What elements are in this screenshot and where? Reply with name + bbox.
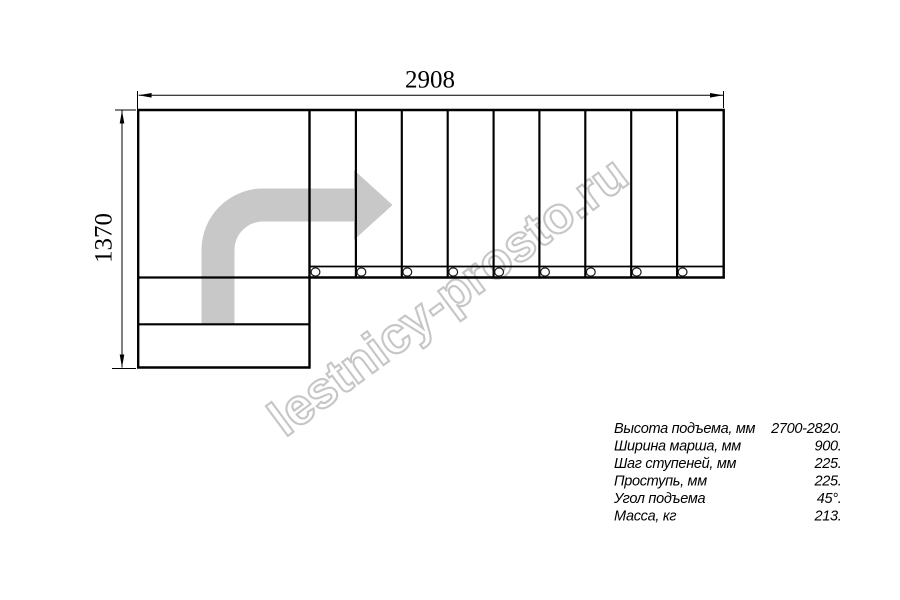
svg-text:45°.: 45°.: [817, 491, 842, 507]
svg-text:Ширина марша, мм: Ширина марша, мм: [614, 439, 741, 455]
svg-text:Высота подъема, мм: Высота подъема, мм: [614, 421, 756, 437]
svg-text:225.: 225.: [813, 474, 841, 490]
svg-text:213.: 213.: [813, 509, 841, 525]
svg-text:2908: 2908: [405, 67, 455, 94]
svg-text:Масса, кг: Масса, кг: [614, 509, 676, 525]
svg-text:900.: 900.: [814, 439, 841, 455]
svg-text:Шаг ступеней, мм: Шаг ступеней, мм: [614, 456, 736, 472]
svg-text:2700-2820.: 2700-2820.: [770, 421, 841, 437]
svg-text:Проступь, мм: Проступь, мм: [614, 474, 707, 490]
svg-text:1370: 1370: [91, 213, 118, 263]
svg-text:Угол подъема: Угол подъема: [613, 491, 705, 507]
svg-text:225.: 225.: [813, 456, 841, 472]
